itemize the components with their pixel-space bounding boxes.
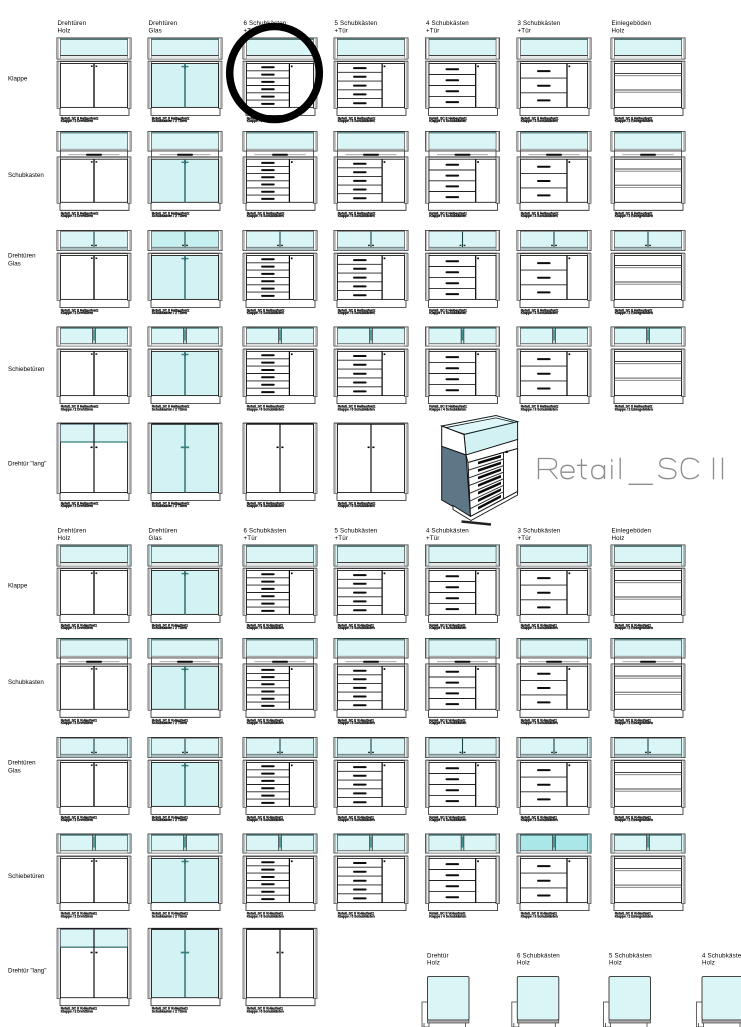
svg-text:Holz: Holz — [427, 959, 440, 966]
svg-text:Schubkasten: Schubkasten — [8, 172, 44, 179]
svg-text:Klappe / 2 Drehtüren: Klappe / 2 Drehtüren — [61, 721, 93, 725]
svg-text:Klappe / 2 Einlegeböden: Klappe / 2 Einlegeböden — [615, 119, 653, 123]
svg-text:Schubkasten / 2 Türen: Schubkasten / 2 Türen — [152, 818, 187, 822]
svg-text:Schubkasten / 2 Türen: Schubkasten / 2 Türen — [152, 914, 187, 918]
svg-text:Schubkasten / 2 Türen: Schubkasten / 2 Türen — [152, 214, 187, 218]
svg-text:Klappe / 6 Schubkästen: Klappe / 6 Schubkästen — [247, 1009, 284, 1013]
svg-text:Klappe / 4 Schubkästen: Klappe / 4 Schubkästen — [429, 311, 466, 315]
svg-text:Holz: Holz — [58, 27, 71, 34]
svg-text:Klappe / 2 Drehtüren: Klappe / 2 Drehtüren — [61, 504, 93, 508]
svg-text:Klappe / 6 Schubkästen: Klappe / 6 Schubkästen — [247, 504, 284, 508]
svg-text:+Tür: +Tür — [426, 27, 440, 34]
svg-text:Holz: Holz — [58, 535, 71, 542]
svg-text:Klappe / 5 Schubkästen: Klappe / 5 Schubkästen — [338, 721, 375, 725]
svg-text:Einlegeböden: Einlegeböden — [612, 528, 652, 535]
svg-text:Klappe / 2 Einlegeböden: Klappe / 2 Einlegeböden — [615, 626, 653, 630]
svg-text:3 Schubkästen: 3 Schubkästen — [518, 20, 561, 27]
svg-text:Klappe / 4 Schubkästen: Klappe / 4 Schubkästen — [429, 721, 466, 725]
svg-text:Klappe / 5 Schubkästen: Klappe / 5 Schubkästen — [338, 626, 375, 630]
svg-text:Klappe / 2 Einlegeböden: Klappe / 2 Einlegeböden — [615, 407, 653, 411]
svg-text:Klappe / 2 Drehtüren: Klappe / 2 Drehtüren — [61, 119, 93, 123]
svg-text:Klappe / 5 Schubkästen: Klappe / 5 Schubkästen — [338, 311, 375, 315]
svg-text:Holz: Holz — [612, 27, 625, 34]
svg-text:Einlegeböden: Einlegeböden — [612, 20, 652, 27]
svg-text:Klappe / 4 Schubkästen: Klappe / 4 Schubkästen — [429, 626, 466, 630]
svg-text:Drehtüren: Drehtüren — [8, 253, 36, 260]
svg-text:Holz: Holz — [702, 959, 715, 966]
svg-text:Klappe / 3 Schubkästen: Klappe / 3 Schubkästen — [521, 311, 558, 315]
svg-text:+Tür: +Tür — [244, 535, 258, 542]
svg-text:Klappe / 5 Schubkästen: Klappe / 5 Schubkästen — [338, 119, 375, 123]
svg-text:Klappe / 2 Drehtüren: Klappe / 2 Drehtüren — [61, 626, 93, 630]
svg-text:Klappe / 2 Einlegeböden: Klappe / 2 Einlegeböden — [615, 818, 653, 822]
svg-text:Schubkasten / 2 Türen: Schubkasten / 2 Türen — [152, 504, 187, 508]
svg-text:5 Schubkästen: 5 Schubkästen — [335, 528, 378, 535]
svg-text:Glas: Glas — [8, 260, 21, 267]
svg-text:Klappe / 6 Schubkästen: Klappe / 6 Schubkästen — [247, 214, 284, 218]
svg-text:Klappe / 2 Einlegeböden: Klappe / 2 Einlegeböden — [615, 214, 653, 218]
svg-text:Klappe / 2 Drehtüren: Klappe / 2 Drehtüren — [61, 311, 93, 315]
svg-text:Holz: Holz — [612, 535, 625, 542]
svg-text:Klappe / 5 Schubkästen: Klappe / 5 Schubkästen — [338, 214, 375, 218]
svg-text:Klappe / 6 Schubkästen: Klappe / 6 Schubkästen — [247, 626, 284, 630]
svg-text:Drehtüren: Drehtüren — [8, 760, 36, 767]
svg-text:Klappe / 4 Schubkästen: Klappe / 4 Schubkästen — [429, 214, 466, 218]
svg-text:4 Schubkästen: 4 Schubkästen — [426, 528, 469, 535]
svg-text:Klappe / 3 Schubkästen: Klappe / 3 Schubkästen — [521, 818, 558, 822]
svg-text:Drehtüren: Drehtüren — [149, 20, 178, 27]
svg-text:Klappe: Klappe — [8, 76, 28, 83]
svg-text:Klappe / 3 Schubkästen: Klappe / 3 Schubkästen — [521, 721, 558, 725]
svg-text:Klappe / 3 Schubkästen: Klappe / 3 Schubkästen — [521, 914, 558, 918]
svg-text:Klappe / 6 Schubkästen: Klappe / 6 Schubkästen — [247, 721, 284, 725]
svg-text:+Tür: +Tür — [518, 27, 532, 34]
svg-text:Klappe / 2 Drehtüren: Klappe / 2 Drehtüren — [61, 914, 93, 918]
svg-text:Klappe / 2 Drehtüren: Klappe / 2 Drehtüren — [61, 407, 93, 411]
svg-text:Schubkasten / 2 Türen: Schubkasten / 2 Türen — [152, 721, 187, 725]
svg-text:Schubkasten / 2 Türen: Schubkasten / 2 Türen — [152, 119, 187, 123]
svg-text:Klappe / 4 Schubkästen: Klappe / 4 Schubkästen — [429, 818, 466, 822]
svg-text:Schiebetüren: Schiebetüren — [8, 873, 45, 880]
svg-text:Klappe / 2 Drehtüren: Klappe / 2 Drehtüren — [61, 214, 93, 218]
svg-text:Klappe / 4 Schubkästen: Klappe / 4 Schubkästen — [429, 407, 466, 411]
svg-text:Klappe / 2 Drehtüren: Klappe / 2 Drehtüren — [61, 818, 93, 822]
svg-text:Klappe / 5 Schubkästen: Klappe / 5 Schubkästen — [338, 914, 375, 918]
svg-text:Holz: Holz — [609, 959, 622, 966]
svg-text:Drehtür "lang": Drehtür "lang" — [8, 967, 46, 974]
svg-text:Drehtür "lang": Drehtür "lang" — [8, 460, 46, 467]
svg-text:Klappe / 2 Einlegeböden: Klappe / 2 Einlegeböden — [615, 721, 653, 725]
svg-text:+Tür: +Tür — [335, 535, 349, 542]
svg-text:Klappe / 5 Schubkästen: Klappe / 5 Schubkästen — [338, 818, 375, 822]
svg-text:Drehtüren: Drehtüren — [58, 528, 87, 535]
svg-text:Klappe / 3 Schubkästen: Klappe / 3 Schubkästen — [521, 119, 558, 123]
svg-text:Klappe / 6 Schubkästen: Klappe / 6 Schubkästen — [247, 914, 284, 918]
svg-text:Klappe / 4 Schubkästen: Klappe / 4 Schubkästen — [429, 119, 466, 123]
svg-text:6 Schubkästen: 6 Schubkästen — [244, 528, 287, 535]
svg-text:Schiebetüren: Schiebetüren — [8, 366, 45, 373]
svg-text:+Tür: +Tür — [518, 535, 532, 542]
svg-text:Glas: Glas — [149, 535, 162, 542]
svg-text:Schubkasten / 2 Türen: Schubkasten / 2 Türen — [152, 1009, 187, 1013]
svg-text:Drehtüren: Drehtüren — [58, 20, 87, 27]
svg-text:Schubkasten: Schubkasten — [8, 679, 44, 686]
svg-text:Klappe / 2 Drehtüren: Klappe / 2 Drehtüren — [61, 1009, 93, 1013]
svg-text:Klappe / 2 Einlegeböden: Klappe / 2 Einlegeböden — [615, 914, 653, 918]
svg-text:Klappe / 3 Schubkästen: Klappe / 3 Schubkästen — [521, 626, 558, 630]
svg-text:Schubkasten / 2 Türen: Schubkasten / 2 Türen — [152, 626, 187, 630]
svg-text:Klappe / 3 Schubkästen: Klappe / 3 Schubkästen — [521, 407, 558, 411]
svg-text:Klappe / 3 Schubkästen: Klappe / 3 Schubkästen — [521, 214, 558, 218]
svg-text:Holz: Holz — [517, 959, 530, 966]
svg-text:Klappe / 2 Einlegeböden: Klappe / 2 Einlegeböden — [615, 311, 653, 315]
svg-text:Klappe / 6 Schubkästen: Klappe / 6 Schubkästen — [247, 311, 284, 315]
svg-text:Klappe / 4 Schubkästen: Klappe / 4 Schubkästen — [429, 914, 466, 918]
svg-text:5 Schubkästen: 5 Schubkästen — [335, 20, 378, 27]
svg-text:3 Schubkästen: 3 Schubkästen — [518, 528, 561, 535]
svg-text:Klappe / 5 Schubkästen: Klappe / 5 Schubkästen — [338, 504, 375, 508]
svg-text:Schubkasten / 2 Türen: Schubkasten / 2 Türen — [152, 407, 187, 411]
svg-text:Klappe / 6 Schubkästen: Klappe / 6 Schubkästen — [247, 818, 284, 822]
svg-text:+Tür: +Tür — [426, 535, 440, 542]
svg-text:+Tür: +Tür — [335, 27, 349, 34]
svg-text:Glas: Glas — [149, 27, 162, 34]
svg-text:4 Schubkästen: 4 Schubkästen — [426, 20, 469, 27]
svg-text:Schubkasten / 2 Türen: Schubkasten / 2 Türen — [152, 311, 187, 315]
svg-text:Drehtüren: Drehtüren — [149, 528, 178, 535]
svg-text:Klappe: Klappe — [8, 583, 28, 590]
svg-text:Glas: Glas — [8, 767, 21, 774]
svg-text:Klappe / 5 Schubkästen: Klappe / 5 Schubkästen — [338, 407, 375, 411]
svg-text:Klappe / 6 Schubkästen: Klappe / 6 Schubkästen — [247, 407, 284, 411]
